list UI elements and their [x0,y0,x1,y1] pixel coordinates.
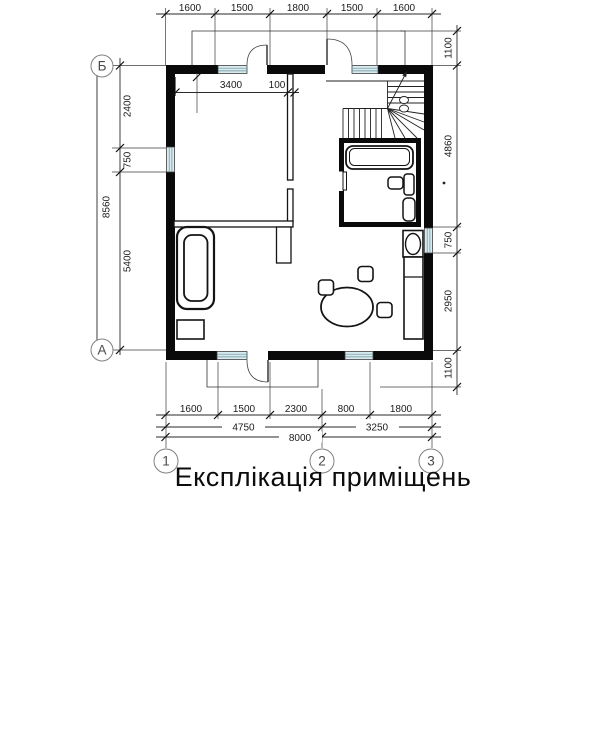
dim-right-1100b: 1100 [444,357,455,379]
bed [177,227,214,309]
chair [377,303,392,318]
dim-100: 100 [269,80,286,91]
window-top-left [218,66,247,74]
axis-label-1: 1 [162,454,170,469]
door-top-1 [247,45,267,65]
dim-bottom1-4: 800 [338,404,355,415]
dim-top-1: 1600 [179,3,202,14]
floor-plan-drawing: 3400 100 1600 1500 1800 1500 1600 2400 7… [0,0,600,750]
window-top-right [352,66,378,74]
axis-label-A: А [97,343,106,358]
dim-left-5400: 5400 [123,249,134,272]
kitchen-sink [406,234,421,255]
dim-bottom-total: 8000 [289,433,312,444]
dim-top-2: 1500 [231,3,254,14]
window-bottom-left [217,352,247,360]
dim-right-4860: 4860 [444,134,455,157]
dimension-bottom: 1600 1500 2300 800 1800 4750 3250 8000 [156,404,441,444]
dim-left-750: 750 [123,151,134,168]
dim-bottom1-5: 1800 [390,404,413,415]
dimension-right: 1100 4860 750 2950 1100 [443,25,461,395]
chair [358,267,373,282]
nightstand [177,320,204,339]
dim-3400: 3400 [220,80,243,91]
dim-right-1100a: 1100 [444,37,455,59]
dim-right-750: 750 [444,231,455,248]
dim-bottom1-3: 2300 [285,404,308,415]
dim-bottom1-1: 1600 [180,404,203,415]
dimension-top: 1600 1500 1800 1500 1600 [156,3,441,18]
toilet [403,198,415,221]
dimension-left: 2400 750 5400 8560 [93,58,134,355]
dim-right-2950: 2950 [444,289,455,312]
chair [319,280,334,295]
bathroom [336,141,419,225]
stair-post [400,97,409,104]
window-bottom-right [345,352,373,360]
porch-outline-bottom [207,360,318,387]
reference-dot [443,182,446,185]
door-top-2 [327,39,352,65]
dim-bottom2-4750: 4750 [232,423,255,434]
dining-set [319,267,393,327]
kitchen-counter [403,231,423,340]
floor-plan-sheet: 3400 100 1600 1500 1800 1500 1600 2400 7… [0,0,600,750]
door-bottom-entry [247,360,268,382]
staircase [326,71,424,139]
window-left [167,147,175,172]
porch-outline-top [192,31,405,65]
dim-top-5: 1600 [393,3,416,14]
bathroom-door-opening [336,172,343,192]
drawing-title: Експлікація приміщень [175,462,472,492]
bathtub [346,146,413,169]
dim-top-4: 1500 [341,3,364,14]
window-right [425,228,433,253]
washbasin [388,174,414,195]
interior-dimension: 3400 100 [172,73,300,113]
axis-label-B: Б [98,59,107,74]
dim-top-3: 1800 [287,3,310,14]
dim-left-2400: 2400 [123,94,134,117]
dim-bottom2-3250: 3250 [366,423,389,434]
bathroom-door-leaf [343,172,347,190]
dim-bottom1-2: 1500 [233,404,256,415]
dim-left-total: 8560 [102,195,113,218]
stair-post [400,105,409,112]
doors [247,39,352,382]
